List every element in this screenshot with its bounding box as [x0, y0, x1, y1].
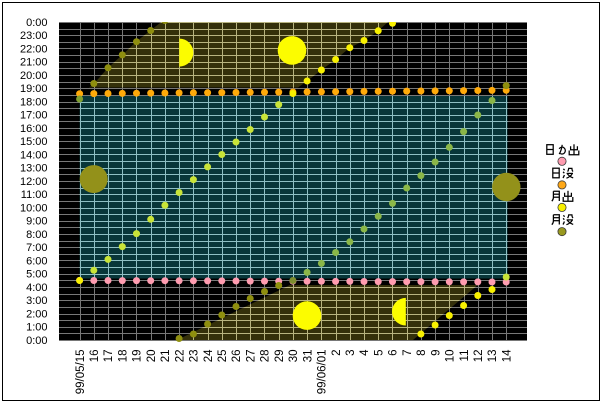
svg-text:13:00: 13:00 — [20, 163, 48, 175]
svg-text:99/05/15: 99/05/15 — [75, 350, 87, 395]
svg-text:11: 11 — [459, 350, 471, 362]
svg-text:9:00: 9:00 — [26, 216, 47, 228]
svg-text:22:00: 22:00 — [20, 43, 48, 55]
svg-text:6:00: 6:00 — [26, 255, 47, 267]
svg-text:31: 31 — [302, 350, 314, 363]
svg-text:12: 12 — [473, 350, 485, 363]
svg-text:30: 30 — [288, 350, 300, 363]
svg-text:21: 21 — [160, 350, 172, 363]
svg-text:1:00: 1:00 — [26, 322, 47, 334]
svg-text:8: 8 — [416, 350, 428, 356]
svg-text:0:00: 0:00 — [26, 17, 47, 29]
svg-text:0:00: 0:00 — [26, 335, 47, 347]
svg-text:25: 25 — [217, 350, 229, 363]
svg-text:5:00: 5:00 — [26, 269, 47, 281]
svg-text:8:00: 8:00 — [26, 229, 47, 241]
svg-text:2: 2 — [331, 350, 343, 356]
svg-text:29: 29 — [274, 350, 286, 363]
svg-text:16: 16 — [89, 350, 101, 363]
svg-text:27: 27 — [245, 350, 257, 363]
svg-text:18: 18 — [118, 350, 130, 363]
svg-text:21:00: 21:00 — [20, 57, 48, 69]
svg-text:99/06/01: 99/06/01 — [317, 350, 329, 395]
svg-text:13: 13 — [487, 350, 499, 363]
svg-text:18:00: 18:00 — [20, 96, 48, 108]
svg-text:22: 22 — [174, 350, 186, 363]
svg-text:6: 6 — [388, 350, 400, 356]
svg-text:5: 5 — [373, 350, 385, 356]
svg-text:19: 19 — [132, 350, 144, 363]
svg-text:4: 4 — [359, 349, 371, 356]
svg-text:3: 3 — [345, 350, 357, 356]
svg-text:26: 26 — [231, 350, 243, 363]
svg-text:7: 7 — [402, 350, 414, 356]
svg-text:12:00: 12:00 — [20, 176, 48, 188]
svg-text:23:00: 23:00 — [20, 30, 48, 42]
svg-text:7:00: 7:00 — [26, 242, 47, 254]
svg-text:10: 10 — [445, 350, 457, 363]
svg-text:11:00: 11:00 — [21, 189, 48, 201]
svg-text:19:00: 19:00 — [20, 83, 48, 95]
svg-text:24: 24 — [203, 349, 215, 362]
svg-text:2:00: 2:00 — [26, 308, 47, 320]
svg-text:14:00: 14:00 — [20, 149, 48, 161]
svg-text:17: 17 — [103, 350, 115, 363]
svg-text:9: 9 — [430, 350, 442, 356]
svg-text:16:00: 16:00 — [20, 123, 48, 135]
svg-text:3:00: 3:00 — [26, 295, 47, 307]
svg-text:23: 23 — [189, 350, 201, 363]
svg-text:20:00: 20:00 — [20, 70, 48, 82]
svg-text:17:00: 17:00 — [20, 110, 48, 122]
svg-text:10:00: 10:00 — [20, 202, 48, 214]
svg-text:15:00: 15:00 — [20, 136, 48, 148]
svg-text:20: 20 — [146, 350, 158, 363]
svg-text:28: 28 — [260, 350, 272, 363]
svg-text:4:00: 4:00 — [26, 282, 47, 294]
svg-text:14: 14 — [501, 349, 513, 362]
